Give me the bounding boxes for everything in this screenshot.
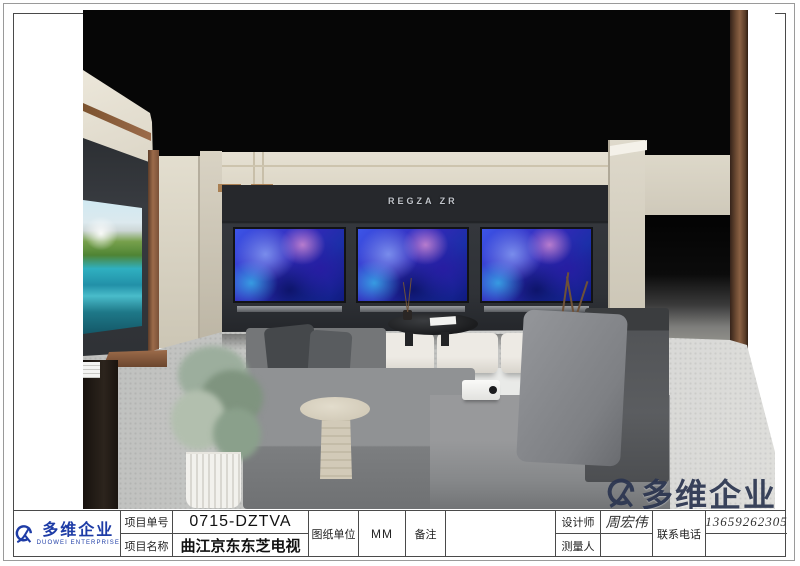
projector-lens — [489, 386, 497, 394]
dark-cabinet — [83, 360, 118, 509]
surveyor-value — [601, 534, 653, 557]
company-emblem-icon — [14, 518, 34, 550]
tv-screen-center — [356, 227, 469, 303]
company-emblem-icon — [605, 475, 637, 509]
soundbar — [237, 306, 342, 312]
phone-value: 13659262305 — [706, 511, 787, 534]
watermark-text: 多维企业 — [641, 470, 775, 509]
nature-display-screen — [83, 198, 143, 334]
book-stack — [83, 362, 100, 378]
regza-brand-sign: REGZA ZR — [388, 196, 458, 206]
pilaster-top-cap — [610, 140, 647, 156]
project-no-value: 0715-DZTVA — [173, 511, 309, 534]
projector-device — [462, 380, 500, 400]
surveyor-label: 测量人 — [556, 534, 601, 557]
drawing-unit-value: MM — [359, 511, 406, 557]
designer-value: 周宏伟 — [601, 511, 653, 534]
company-watermark: 多维企业 — [605, 470, 775, 509]
drawing-sheet: REGZA ZR — [0, 0, 800, 566]
side-table — [300, 397, 370, 421]
phone-label: 联系电话 — [653, 511, 706, 557]
tv-screen-left — [233, 227, 346, 303]
project-name-value: 曲江京东东芝电视 — [173, 534, 309, 557]
interior-render: REGZA ZR — [83, 10, 775, 509]
wall-trim-line — [200, 165, 640, 167]
coffee-table-leg — [441, 332, 449, 346]
side-table-base — [320, 413, 352, 479]
soundbar — [360, 306, 465, 312]
company-name-en: DUOWEI ENTERPRISE — [37, 540, 120, 547]
remark-label: 备注 — [406, 511, 446, 557]
sofa-back-cushion — [516, 309, 628, 466]
left-pilaster — [159, 156, 200, 348]
tv-screen-right — [480, 227, 593, 303]
title-block: 多维企业 DUOWEI ENTERPRISE 项目单号 项目名称 0715-DZ… — [13, 510, 786, 557]
remark-value — [446, 511, 556, 557]
plant-pot — [186, 452, 241, 508]
project-no-label: 项目单号 — [121, 511, 173, 534]
copper-trim-vertical — [148, 150, 159, 362]
company-logo-text: 多维企业 DUOWEI ENTERPRISE — [37, 522, 120, 546]
drawing-unit-label: 图纸单位 — [309, 511, 359, 557]
designer-label: 设计师 — [556, 511, 601, 534]
wall-corner-strip — [200, 151, 222, 347]
company-name-cn: 多维企业 — [42, 522, 114, 540]
company-logo: 多维企业 DUOWEI ENTERPRISE — [14, 511, 121, 557]
coffee-table-leg — [405, 332, 413, 346]
project-name-label: 项目名称 — [121, 534, 173, 557]
doorway-header — [645, 155, 730, 217]
phone-value-empty — [706, 534, 787, 557]
